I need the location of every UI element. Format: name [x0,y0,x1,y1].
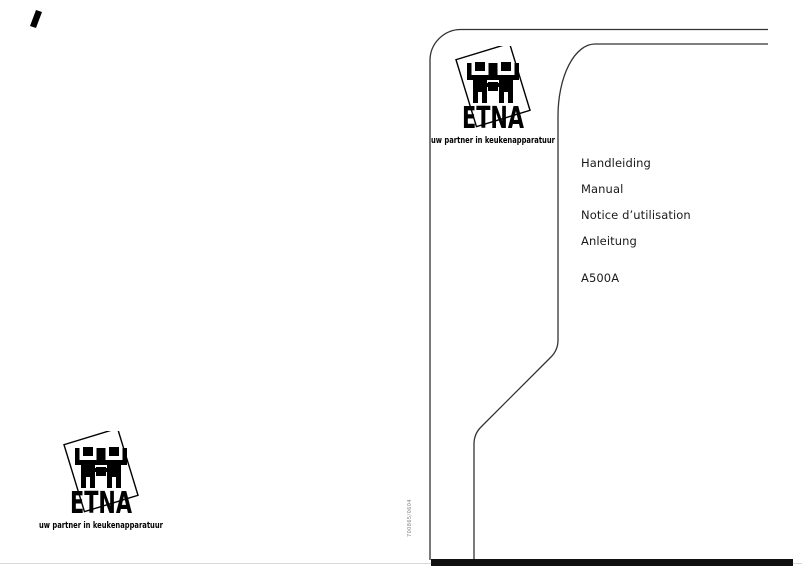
manual-cover-page: ETNA uw partner in keukenapparatuur [0,0,802,567]
bottom-black-bar [431,559,793,566]
etna-brand-text: ETNA [70,486,133,521]
corner-registration-mark [30,10,42,28]
etna-logo-top: ETNA uw partner in keukenapparatuur [428,46,558,146]
etna-figures-icon [75,447,127,488]
title-notice-utilisation: Notice d’utilisation [581,202,691,228]
vertical-print-code: 700865/0604 [407,499,413,537]
etna-tagline-text: uw partner in keukenapparatuur [39,521,164,531]
title-block: Handleiding Manual Notice d’utilisation … [581,150,691,291]
title-manual: Manual [581,176,691,202]
etna-tagline-text: uw partner in keukenapparatuur [431,136,556,146]
etna-logo-artwork: ETNA uw partner in keukenapparatuur [36,431,166,531]
etna-brand-text: ETNA [462,101,525,136]
model-number: A500A [581,265,691,291]
etna-logo-artwork: ETNA uw partner in keukenapparatuur [428,46,558,146]
title-handleiding: Handleiding [581,150,691,176]
etna-figures-icon [467,62,519,103]
title-anleitung: Anleitung [581,228,691,254]
etna-logo-bottom: ETNA uw partner in keukenapparatuur [36,431,166,531]
